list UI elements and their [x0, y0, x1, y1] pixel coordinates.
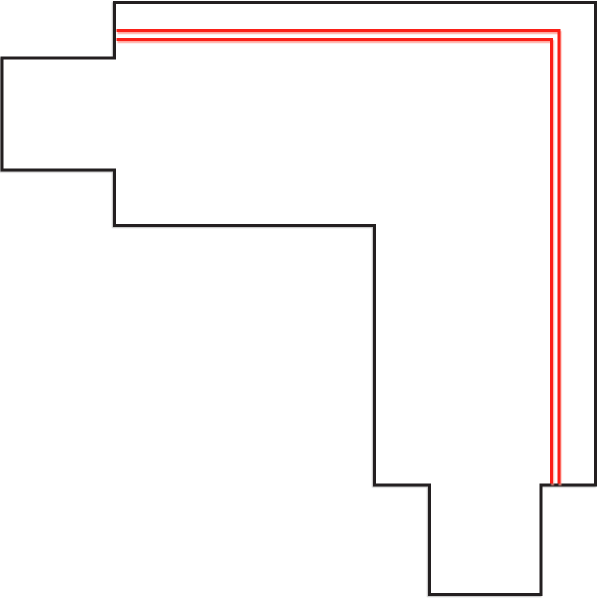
corner-profile-outline	[2, 3, 596, 595]
corner-connector-diagram	[0, 0, 600, 600]
diagram-stage	[0, 0, 600, 600]
